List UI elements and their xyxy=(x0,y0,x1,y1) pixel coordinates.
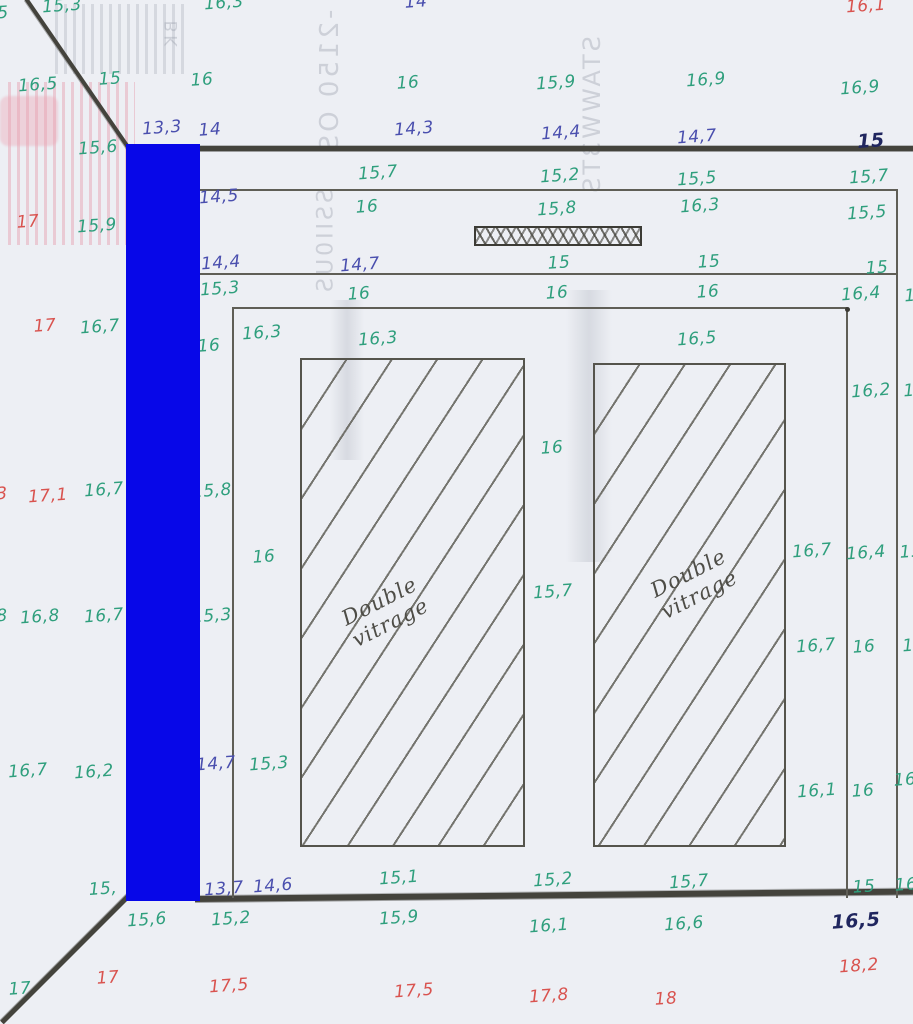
temperature-label: 13,7 xyxy=(203,878,244,901)
temperature-label: 15,9 xyxy=(76,215,117,238)
temperature-label: 16,6 xyxy=(663,913,704,936)
temperature-label: 15,7 xyxy=(848,166,889,189)
temperature-label: 15,3 xyxy=(248,753,289,776)
temperature-label: 3 xyxy=(0,484,8,505)
temperature-label: 15 xyxy=(697,251,721,273)
bleed-through-text: BK xyxy=(162,21,182,50)
frame-band-top-line xyxy=(197,189,898,191)
temperature-label: 14 xyxy=(404,0,428,13)
temperature-label: 16,1 xyxy=(845,0,886,17)
temperature-label: 16 xyxy=(355,196,379,218)
temperature-label: 16,2 xyxy=(73,761,114,784)
bleed-through-text: STAWW3TS xyxy=(578,36,606,196)
temperature-label: 16,5 xyxy=(17,74,58,97)
frame-corner-dot xyxy=(845,307,850,312)
wall-diagonal-bottom-left xyxy=(0,893,131,1024)
temperature-label: 14,7 xyxy=(676,126,717,149)
bleed-through-text: SSII0US xyxy=(314,189,339,295)
temperature-label: 14,6 xyxy=(252,875,293,898)
temperature-label: 16,4 xyxy=(840,283,881,306)
temperature-label: 14,4 xyxy=(540,122,581,145)
temperature-label: 16,9 xyxy=(839,77,880,100)
temperature-label: 15,7 xyxy=(357,162,398,185)
temperature-label: 15 xyxy=(865,257,889,279)
temperature-label: 17 xyxy=(8,978,32,1000)
temperature-label: 17,5 xyxy=(393,980,434,1003)
temperature-label: 15,6 xyxy=(126,909,167,932)
temperature-label: 17 xyxy=(96,967,120,989)
temperature-label: 16,5 xyxy=(676,328,717,351)
temperature-label: 18,2 xyxy=(838,955,879,978)
temperature-label: 15 xyxy=(852,876,876,898)
temperature-label: 16,2 xyxy=(850,380,891,403)
temperature-label: 16,7 xyxy=(795,635,836,658)
temperature-label: 16 xyxy=(347,283,371,305)
temperature-label: 16,1 xyxy=(528,915,569,938)
temperature-label: 15,1 xyxy=(378,867,419,890)
temperature-label: 14,4 xyxy=(200,252,241,275)
redaction-overlay xyxy=(126,144,200,901)
temperature-label: 16,7 xyxy=(791,540,832,563)
temperature-label: 16,5 xyxy=(831,908,881,933)
temperature-label: 14,3 xyxy=(393,118,434,141)
temperature-label: 16 xyxy=(851,780,875,802)
temperature-label: 15,6 xyxy=(77,137,118,160)
temperature-label: 15,5 xyxy=(676,168,717,191)
temperature-label: 15 xyxy=(98,68,122,90)
temperature-label: 8 xyxy=(0,606,8,627)
scanned-window-sketch: BK-2150 OSSSII0USSTAWW3TS Double vitrage… xyxy=(0,0,913,1024)
window-frame-left-line xyxy=(232,307,234,898)
temperature-label: 15, xyxy=(88,878,118,900)
temperature-label: 16 xyxy=(893,769,913,791)
temperature-label: 16 xyxy=(396,72,420,94)
temperature-label: 16,9 xyxy=(685,69,726,92)
temperature-label: 16,7 xyxy=(83,479,124,502)
temperature-label: 16,7 xyxy=(7,760,48,783)
temperature-label: 15,8 xyxy=(536,198,577,221)
temperature-label: 14,7 xyxy=(339,254,380,277)
temperature-label: 18 xyxy=(654,988,678,1010)
temperature-label: 16 xyxy=(197,335,221,357)
temperature-label: 15,7 xyxy=(668,871,709,894)
temperature-label: 14 xyxy=(198,119,222,141)
temperature-label: 15,2 xyxy=(532,869,573,892)
temperature-label: 17,1 xyxy=(27,485,68,508)
temperature-label: 16,7 xyxy=(83,605,124,628)
wall-line-top xyxy=(126,146,913,151)
temperature-label: 15,3 xyxy=(199,278,240,301)
temperature-label: 16,8 xyxy=(19,606,60,629)
temperature-label: 15,3 xyxy=(41,0,82,17)
temperature-label: 14,7 xyxy=(195,753,236,776)
window-frame-right-line xyxy=(846,309,848,898)
temperature-label: 15 xyxy=(857,129,886,153)
frame-outer-right-line xyxy=(896,189,898,898)
temperature-label: 16 xyxy=(894,874,913,896)
temperature-label: 1 xyxy=(904,286,913,307)
temperature-label: 15 xyxy=(547,252,571,274)
pink-highlighter-patch xyxy=(0,96,58,146)
temperature-label: 16 xyxy=(545,282,569,304)
temperature-label: 16,3 xyxy=(241,322,282,345)
temperature-label: 16,7 xyxy=(79,316,120,339)
window-frame-top-line xyxy=(233,307,847,309)
temperature-label: 16 xyxy=(190,69,214,91)
temperature-label: 17,8 xyxy=(528,985,569,1008)
ventilation-grille xyxy=(474,226,642,246)
wall-line-bottom xyxy=(195,888,913,902)
temperature-label: 15,2 xyxy=(210,908,251,931)
temperature-label: 14,5 xyxy=(198,186,239,209)
temperature-label: 17,5 xyxy=(208,975,249,998)
temperature-label: 13,3 xyxy=(141,117,182,140)
temperature-label: 15,7 xyxy=(532,581,573,604)
temperature-label: 15,9 xyxy=(378,907,419,930)
temperature-label: 1 xyxy=(902,636,913,657)
temperature-label: 16,3 xyxy=(203,0,244,14)
temperature-label: 17 xyxy=(33,315,57,337)
temperature-label: 1 xyxy=(903,381,913,402)
temperature-label: 15,9 xyxy=(535,72,576,95)
temperature-label: 16 xyxy=(252,546,276,568)
temperature-label: 17 xyxy=(16,211,40,233)
temperature-label: 16,3 xyxy=(357,328,398,351)
temperature-label: 16 xyxy=(696,281,720,303)
temperature-label: 16 xyxy=(852,636,876,658)
temperature-label: 16,1 xyxy=(796,780,837,803)
temperature-label: 5 xyxy=(0,3,9,24)
temperature-label: 15,2 xyxy=(539,165,580,188)
bleed-through-text: -2150 OS xyxy=(315,10,345,155)
temperature-label: 15,5 xyxy=(846,202,887,225)
temperature-label: 16,4 xyxy=(845,542,886,565)
temperature-label: 15 xyxy=(899,541,913,563)
temperature-label: 16 xyxy=(540,437,564,459)
temperature-label: 16,3 xyxy=(679,195,720,218)
